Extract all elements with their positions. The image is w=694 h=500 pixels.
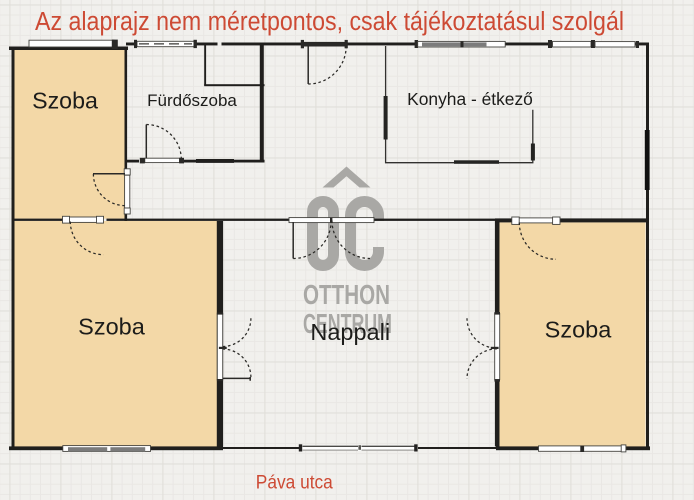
svg-text:OTTHON: OTTHON bbox=[303, 279, 390, 310]
svg-text:Szoba: Szoba bbox=[78, 313, 146, 339]
svg-text:Páva utca: Páva utca bbox=[256, 473, 333, 494]
svg-text:Szoba: Szoba bbox=[32, 88, 98, 114]
svg-text:Nappali: Nappali bbox=[310, 319, 390, 345]
svg-text:Fürdőszoba: Fürdőszoba bbox=[147, 91, 237, 110]
svg-text:Az alaprajz nem méretpontos, c: Az alaprajz nem méretpontos, csak tájéko… bbox=[35, 8, 624, 36]
svg-text:Konyha - étkező: Konyha - étkező bbox=[407, 89, 533, 109]
svg-text:Szoba: Szoba bbox=[545, 316, 613, 342]
